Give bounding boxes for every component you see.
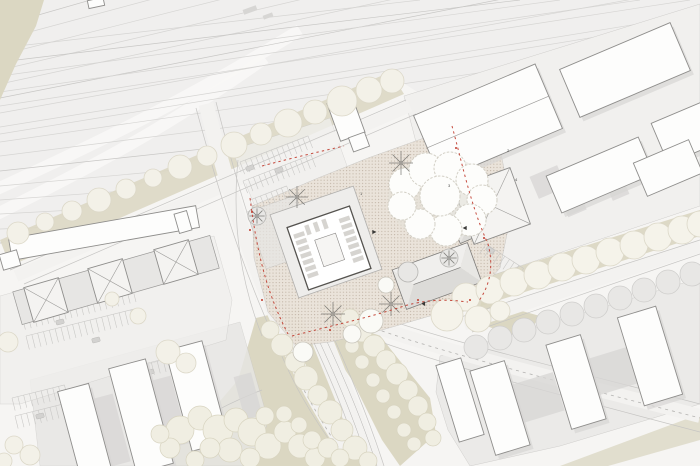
plaza-tree xyxy=(359,309,383,333)
boulevard-tree xyxy=(366,373,380,387)
boulevard-tree xyxy=(271,334,293,356)
grove-tree xyxy=(331,449,349,466)
boulevard-tree xyxy=(355,355,369,369)
boulevard-tree xyxy=(359,452,377,466)
allee-tree xyxy=(36,213,54,231)
allee-tree xyxy=(168,155,192,179)
avenue-tree-gray xyxy=(488,326,512,350)
allee-tree xyxy=(221,132,247,158)
boulevard-tree xyxy=(387,405,401,419)
avenue-tree-gray xyxy=(680,262,700,286)
red-dot xyxy=(469,299,471,301)
grove-tree xyxy=(218,438,242,462)
street-tree xyxy=(0,332,18,352)
avenue-tree-gray xyxy=(632,278,656,302)
corner-tree xyxy=(465,306,491,332)
allee-tree xyxy=(380,69,404,93)
allee-tree xyxy=(116,179,136,199)
corner-tree xyxy=(431,299,463,331)
avenue-tree-gray xyxy=(608,286,632,310)
allee-tree xyxy=(356,77,382,103)
boulevard-tree xyxy=(418,413,436,431)
plaza-tree xyxy=(378,277,394,293)
allee-tree xyxy=(62,201,82,221)
allee-tree xyxy=(250,123,272,145)
avenue-tree-gray xyxy=(560,302,584,326)
grove-tree xyxy=(256,407,274,425)
site-plan-stage: 2413 xyxy=(0,0,700,466)
street-tree xyxy=(130,308,146,324)
allee-tree xyxy=(87,188,111,212)
avenue-tree-gray xyxy=(536,310,560,334)
red-dot xyxy=(249,229,251,231)
boulevard-tree xyxy=(376,389,390,403)
red-dot xyxy=(251,211,253,213)
grove-tree xyxy=(200,438,220,458)
canopy-tree xyxy=(430,214,462,246)
grove-tree xyxy=(240,448,260,466)
grove-tree xyxy=(151,425,169,443)
plaza-planter xyxy=(398,262,418,282)
avenue-tree xyxy=(500,268,528,296)
plaza-tree xyxy=(293,342,313,362)
boulevard-tree xyxy=(407,437,421,451)
avenue-tree-gray xyxy=(584,294,608,318)
tree-in-planter xyxy=(440,249,458,267)
boulevard-tree xyxy=(397,423,411,437)
grove-tree xyxy=(276,406,292,422)
avenue-tree-gray xyxy=(512,318,536,342)
canopy-tree xyxy=(388,192,416,220)
red-dot xyxy=(483,237,485,239)
allee-tree xyxy=(327,86,357,116)
allee-tree xyxy=(7,222,29,244)
avenue-tree xyxy=(548,253,576,281)
red-dot xyxy=(455,147,457,149)
corner-tree xyxy=(490,301,510,321)
allee-tree xyxy=(197,146,217,166)
tree-in-planter xyxy=(248,207,266,225)
boulevard-tree xyxy=(425,430,441,446)
red-dot xyxy=(329,329,331,331)
canopy-tree xyxy=(420,176,460,216)
red-dot xyxy=(261,299,263,301)
street-tree xyxy=(20,445,40,465)
allee-tree xyxy=(303,100,327,124)
avenue-tree xyxy=(596,238,624,266)
street-tree xyxy=(176,353,196,373)
avenue-tree-gray xyxy=(464,335,488,359)
allee-tree xyxy=(144,169,162,187)
avenue-tree-gray xyxy=(656,270,680,294)
grove-tree xyxy=(291,417,307,433)
red-dot xyxy=(417,299,419,301)
site-plan-canvas: 2413 xyxy=(0,0,700,466)
plaza-tree xyxy=(343,325,361,343)
grove-tree xyxy=(186,451,204,466)
street-tree xyxy=(105,292,119,306)
allee-tree xyxy=(274,109,302,137)
avenue-tree xyxy=(644,223,672,251)
